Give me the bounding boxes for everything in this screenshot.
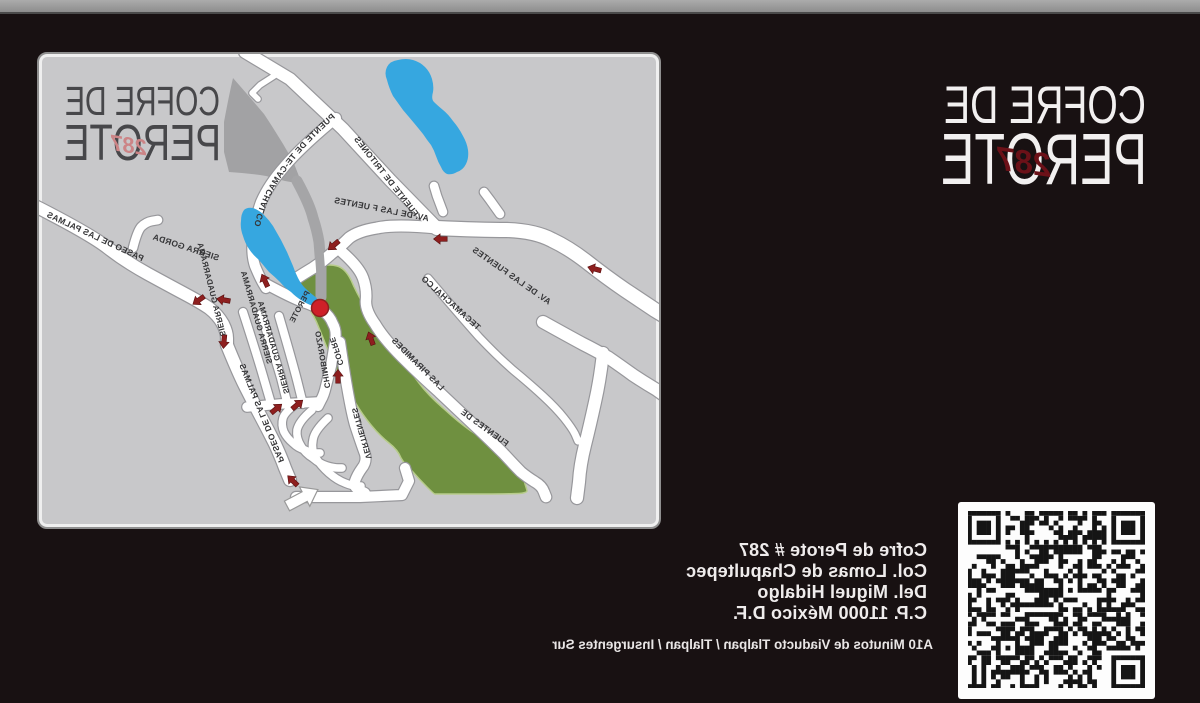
svg-text:AV. DE LAS FUENTES: AV. DE LAS FUENTES	[470, 245, 553, 307]
svg-text:TECAMACHALCO: TECAMACHALCO	[419, 273, 482, 332]
svg-text:PASEO DE LAS PALMAS: PASEO DE LAS PALMAS	[45, 209, 145, 263]
svg-text:SIERRA GORDA: SIERRA GORDA	[151, 232, 220, 263]
